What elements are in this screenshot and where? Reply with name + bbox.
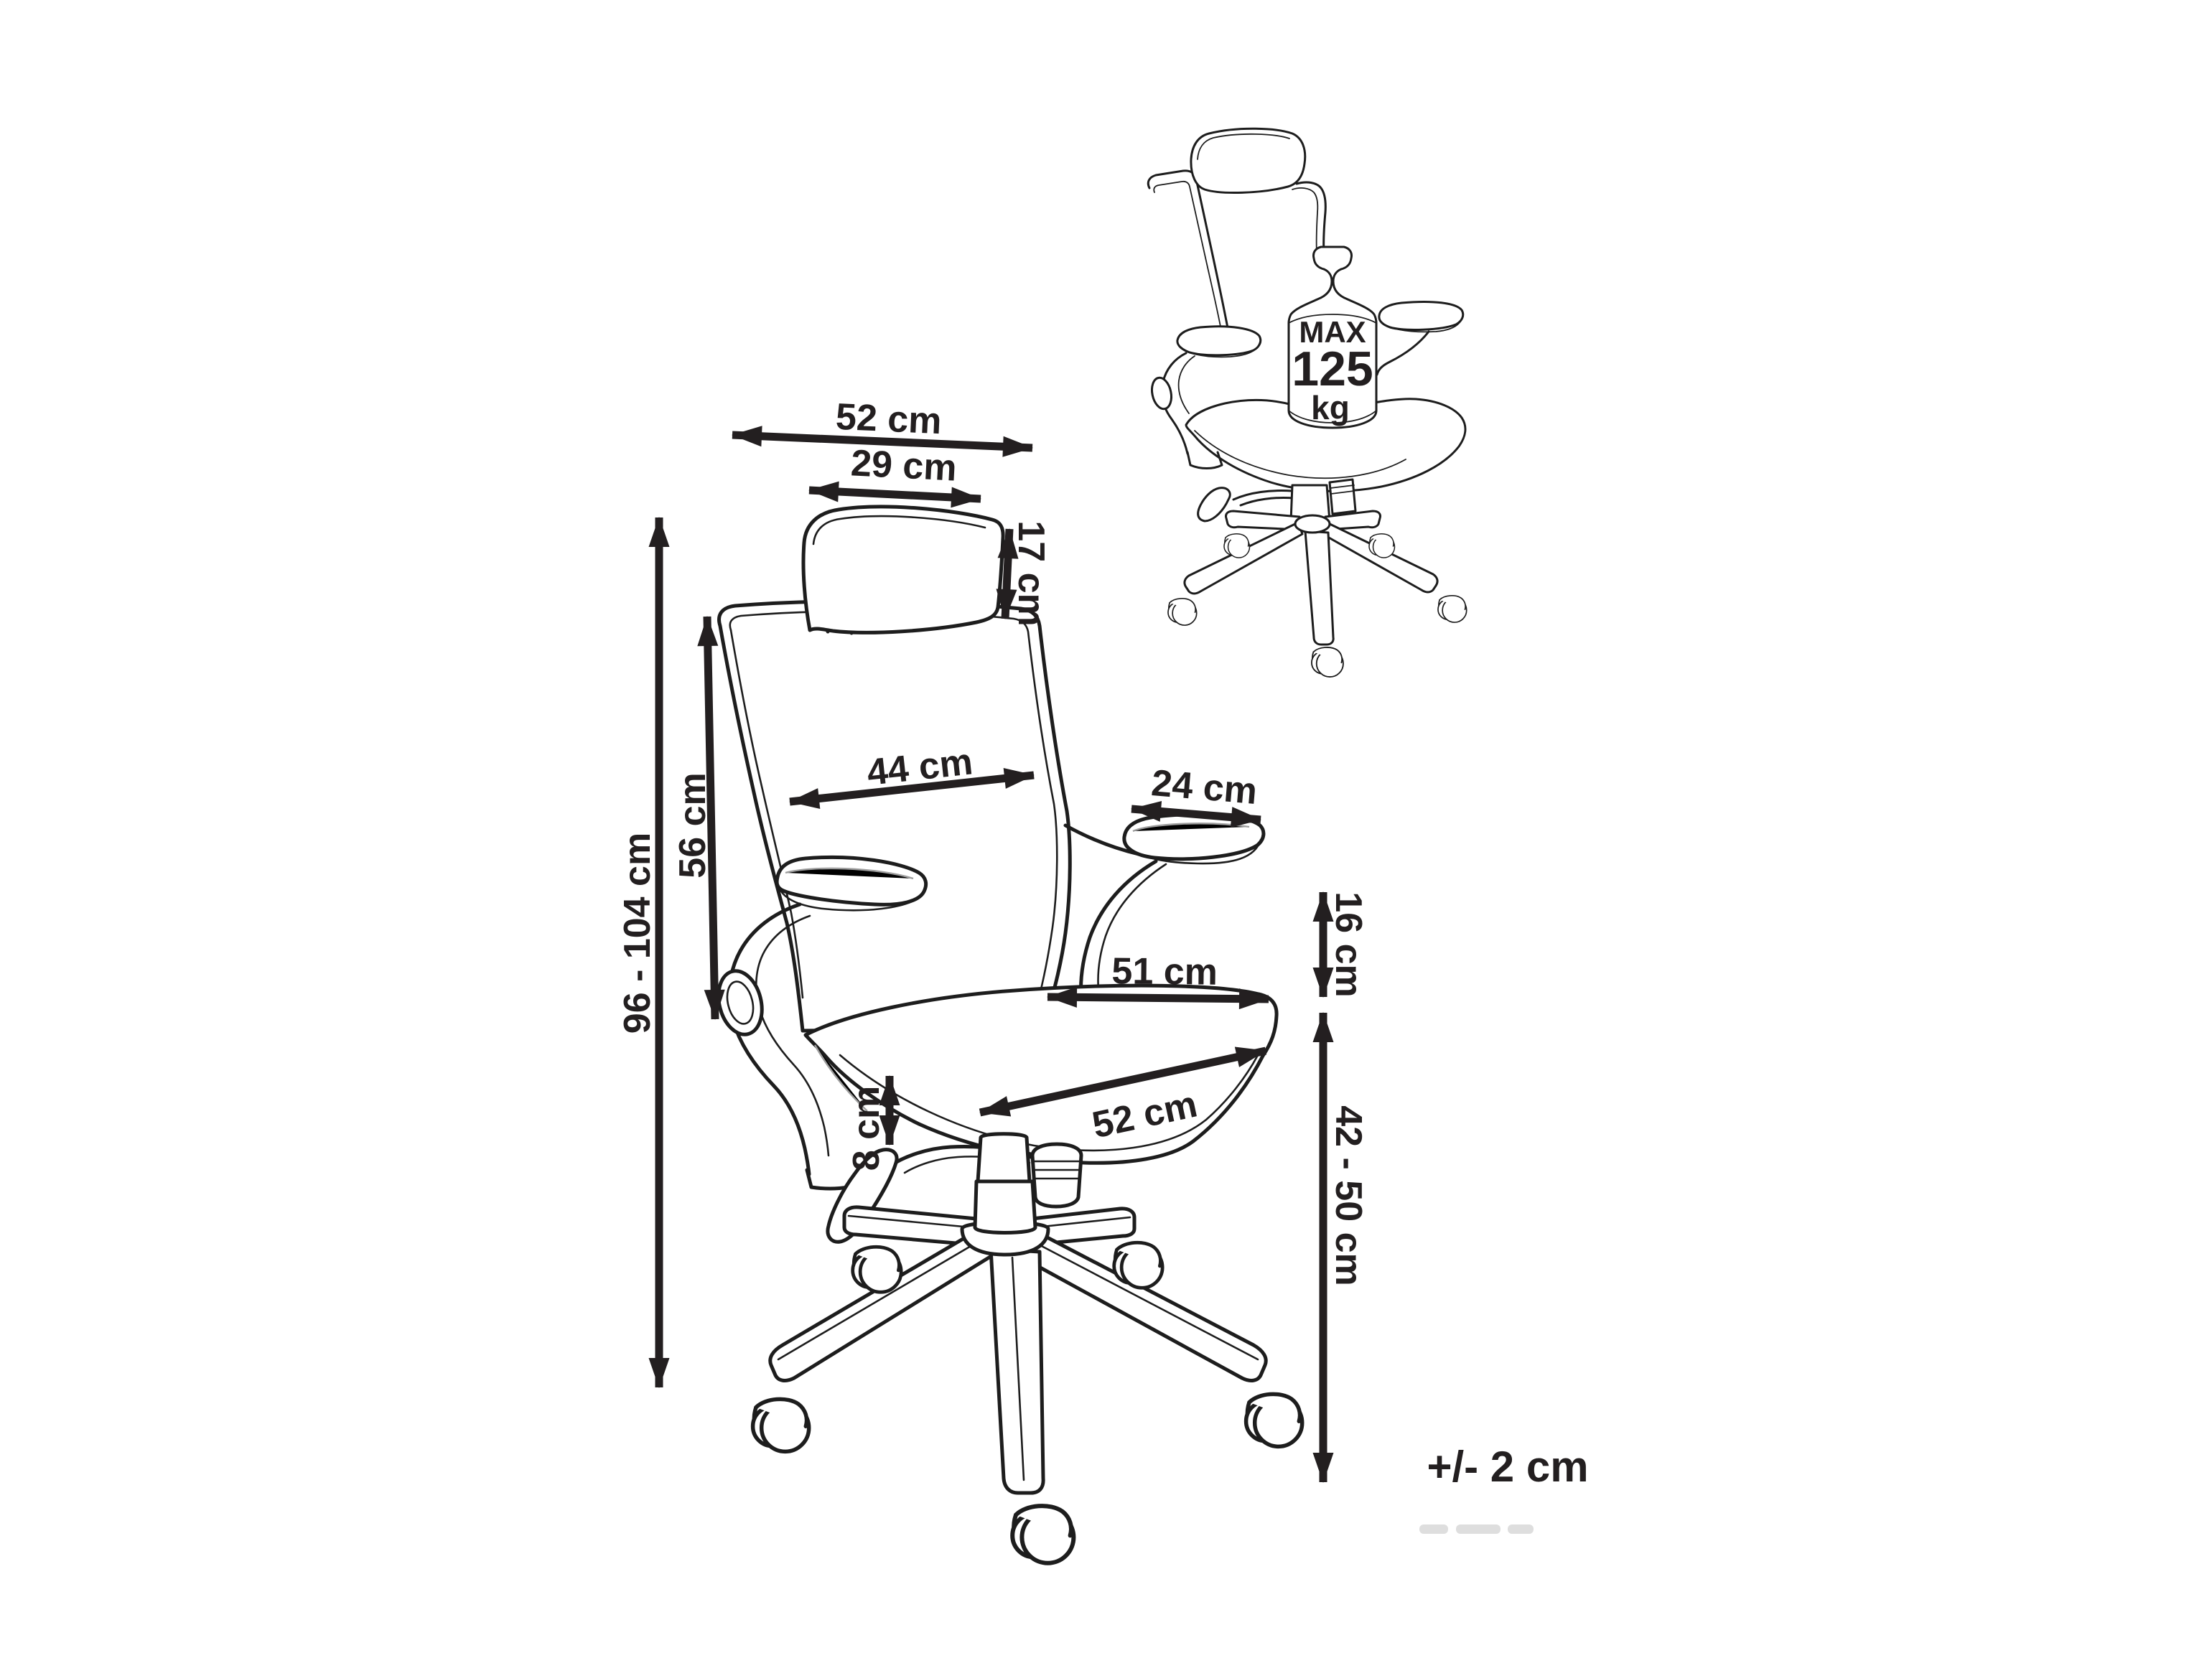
dimension-label-seat-thickness: 8 cm <box>846 1086 887 1171</box>
main-chair-drawing <box>712 507 1302 1563</box>
main-chair-headrest <box>803 507 1003 632</box>
small-chair-drawing: MAX 125 kg <box>1148 128 1466 677</box>
dimension-label-headrest-height: 17 cm <box>1010 520 1052 626</box>
caster-icon <box>853 1247 901 1292</box>
dimension-seat-height: 42 - 50 cm <box>1323 1013 1369 1482</box>
dimension-headrest-height: 17 cm <box>1005 520 1052 626</box>
small-chair-base <box>1168 511 1467 677</box>
caster-icon <box>753 1399 809 1451</box>
dimension-total-width: 52 cm <box>732 396 1032 448</box>
caster-icon <box>1438 596 1467 622</box>
dimension-armrest-length: 24 cm <box>1131 762 1261 820</box>
main-chair-backrest <box>719 601 1070 1031</box>
dimension-headrest-width: 29 cm <box>809 442 981 499</box>
dimension-label-armrest-height: 16 cm <box>1327 891 1369 997</box>
max-load-line3: kg <box>1311 389 1350 426</box>
main-chair-gas-lift <box>975 1181 1035 1233</box>
dimension-label-total-height: 96 - 104 cm <box>617 833 658 1034</box>
small-chair-headrest <box>1191 128 1305 192</box>
dimension-label-armrest-length: 24 cm <box>1150 762 1259 812</box>
small-chair-right-armrest <box>1377 301 1463 375</box>
dimension-total-height: 96 - 104 cm <box>617 517 659 1387</box>
max-load-line2: 125 <box>1292 342 1373 396</box>
dimension-label-seat-width: 51 cm <box>1111 950 1218 993</box>
caster-icon <box>1246 1394 1302 1446</box>
tolerance-note: +/- 2 cm <box>1427 1443 1588 1491</box>
chair-dimension-diagram: MAX 125 kg <box>0 0 2212 1658</box>
dimension-diagram-page: MAX 125 kg <box>0 0 2212 1658</box>
caster-icon <box>1312 647 1343 677</box>
caster-icon <box>1012 1506 1073 1563</box>
dimension-seat-thickness: 8 cm <box>846 1076 890 1171</box>
max-load-weight-icon: MAX 125 kg <box>1289 247 1376 428</box>
watermark-remnant <box>1419 1524 1534 1534</box>
dimension-label-total-width: 52 cm <box>835 396 943 442</box>
caster-icon <box>1168 599 1197 625</box>
main-chair-base <box>753 1134 1302 1563</box>
caster-icon <box>1369 534 1395 558</box>
caster-icon <box>1224 534 1250 558</box>
caster-icon <box>1114 1242 1162 1288</box>
dimension-label-headrest-width: 29 cm <box>850 442 958 489</box>
dimension-label-backrest-height: 56 cm <box>672 772 714 878</box>
dimension-backrest-height: 56 cm <box>672 617 715 1019</box>
dimension-label-seat-height: 42 - 50 cm <box>1327 1105 1369 1286</box>
dimension-armrest-height: 16 cm <box>1323 891 1369 997</box>
